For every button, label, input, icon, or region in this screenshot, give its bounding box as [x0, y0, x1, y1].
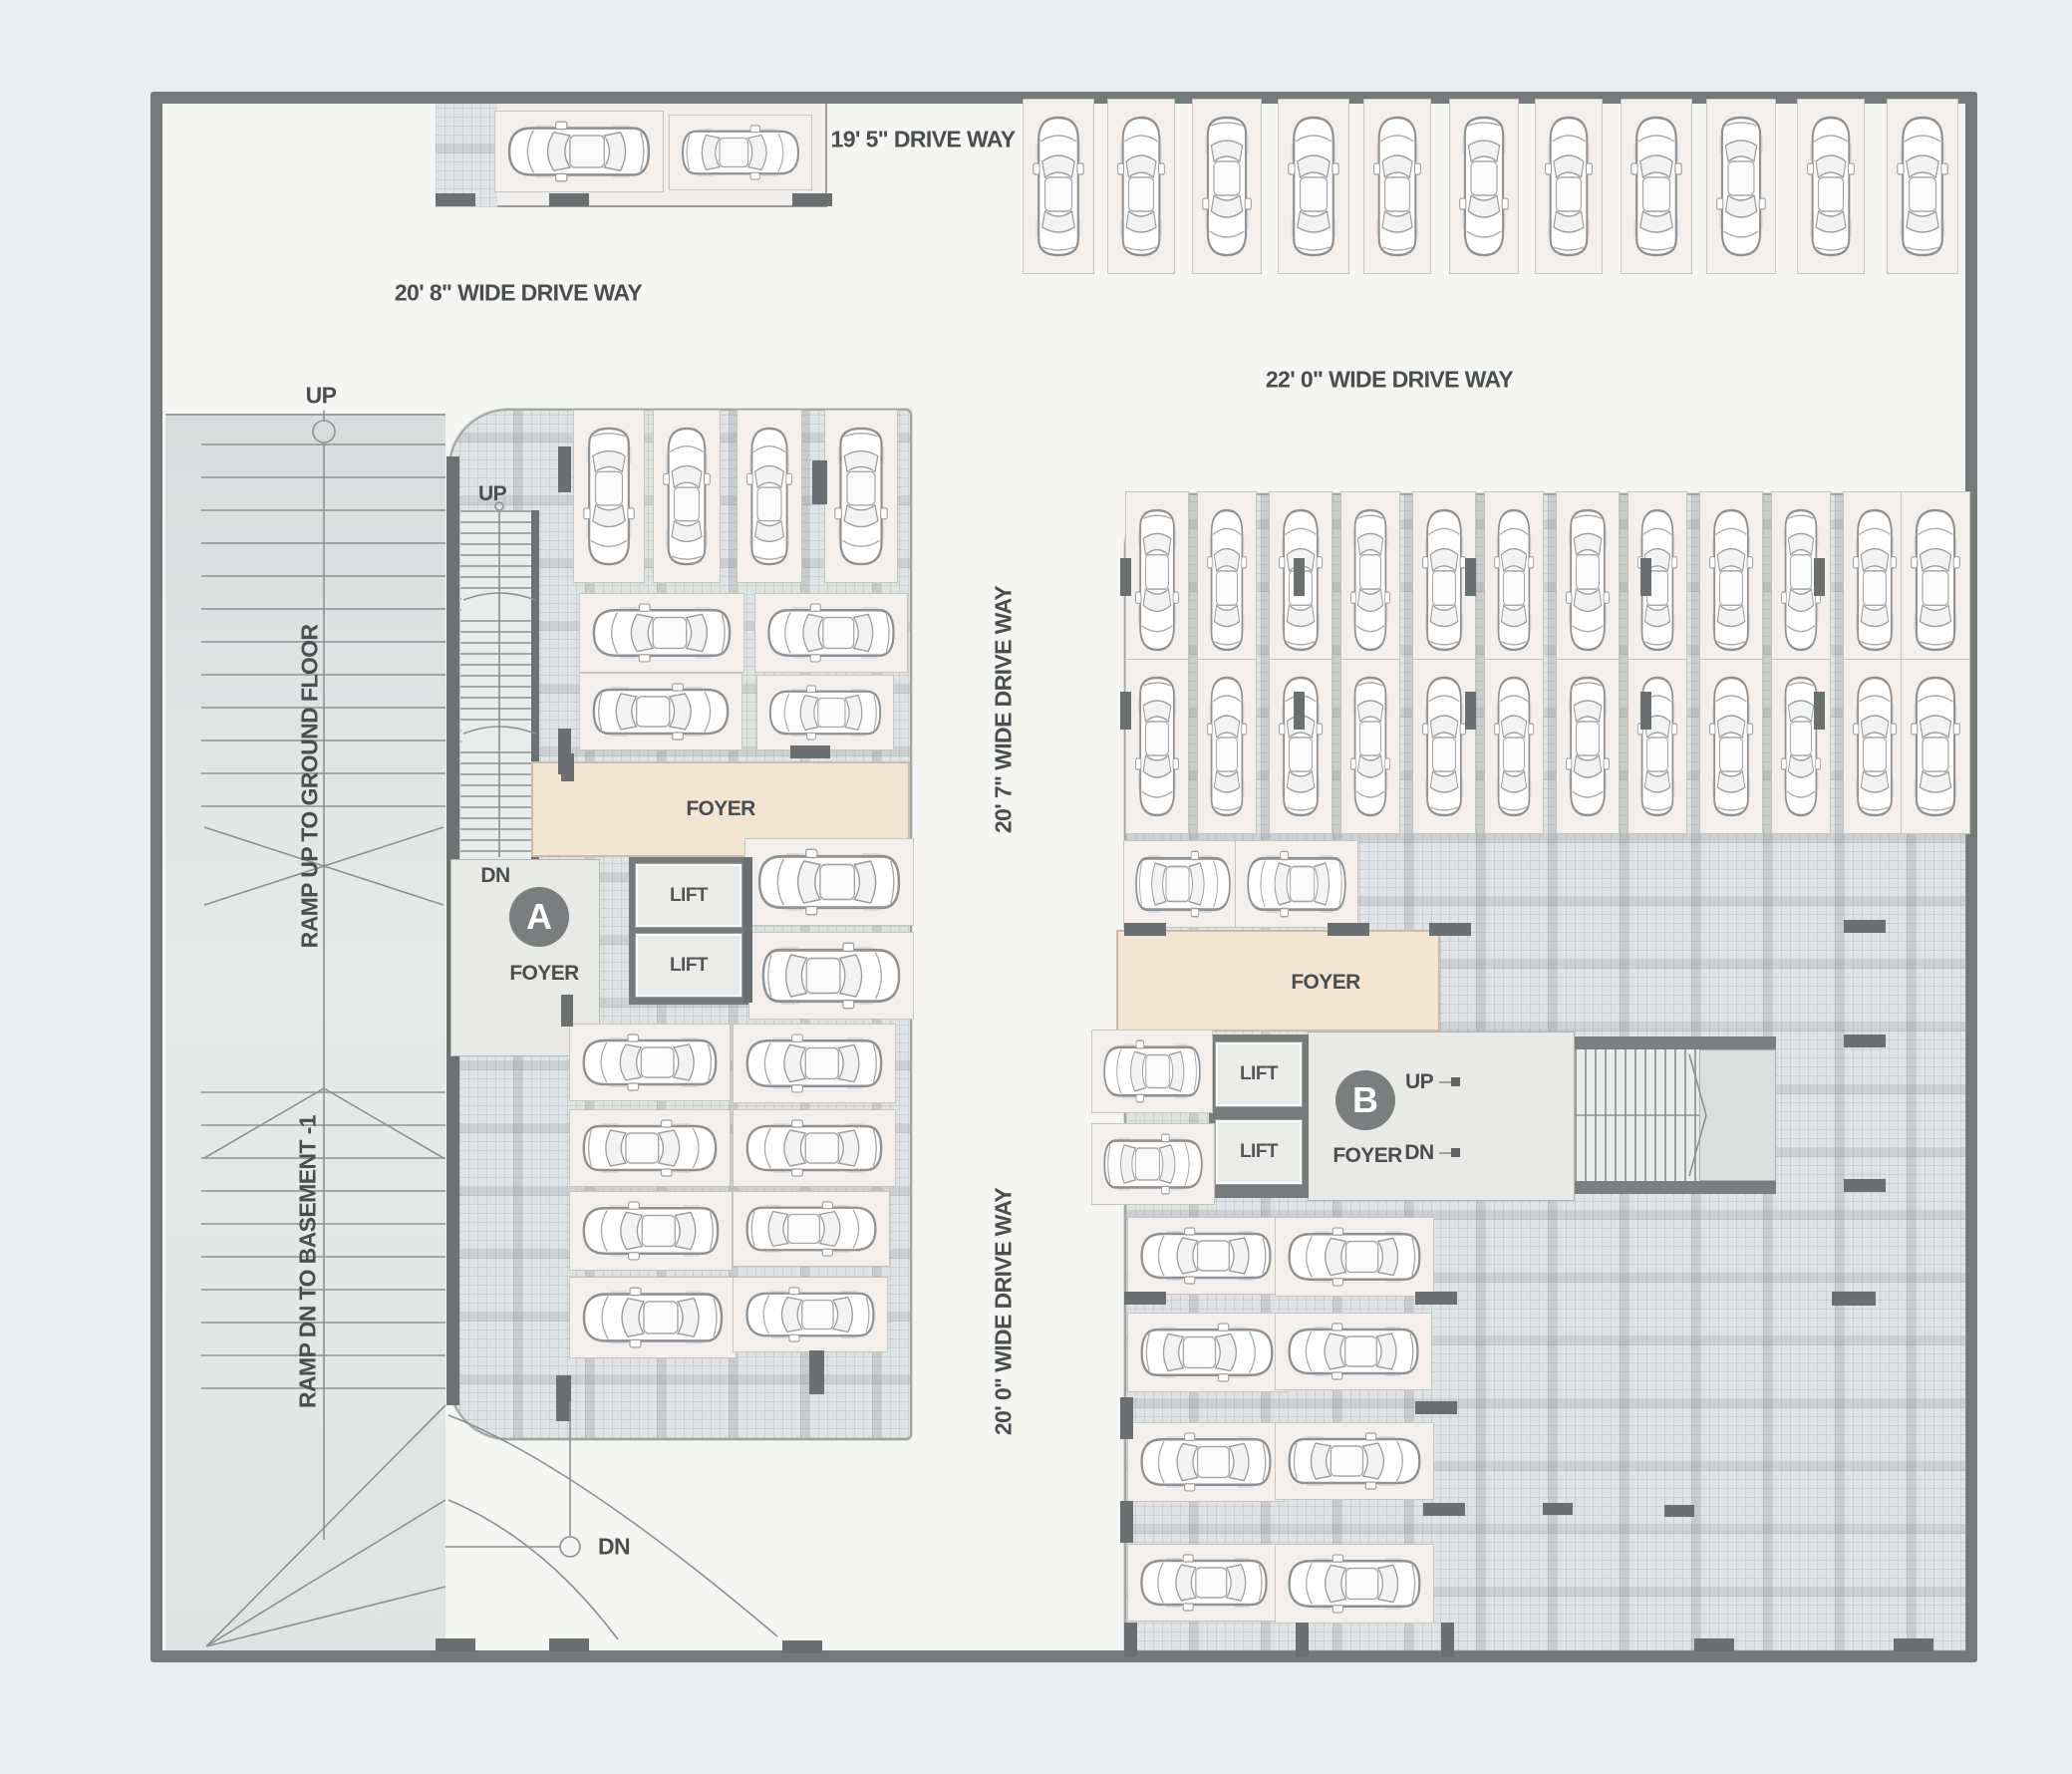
tower-a-staircase: [460, 510, 538, 862]
car-icon: [1458, 112, 1510, 261]
car-icon: [741, 1286, 879, 1343]
tower-a-core-foyer-label: FOYER: [509, 962, 578, 986]
column-marker: [1640, 692, 1651, 730]
car-icon: [745, 423, 793, 570]
lift-label: LIFT: [670, 955, 708, 977]
lift-label: LIFT: [670, 885, 708, 907]
car-icon: [1349, 672, 1391, 821]
car-icon: [1421, 672, 1467, 821]
ramp-up-marker-label: UP: [306, 383, 337, 410]
car-icon: [763, 602, 899, 664]
top-parking-bay-tiles: [436, 104, 497, 207]
car-icon: [1244, 849, 1349, 919]
column-marker: [809, 1350, 824, 1394]
column-marker: [1664, 1505, 1694, 1517]
lift-label: LIFT: [1240, 1141, 1278, 1163]
column-marker: [1120, 558, 1131, 596]
driveway-label-20-7: 20' 7" WIDE DRIVE WAY: [991, 586, 1018, 833]
column-marker: [561, 995, 573, 1027]
car-icon: [1349, 504, 1391, 656]
column-marker: [782, 1640, 822, 1653]
car-icon: [1806, 112, 1856, 261]
stair-a-landing-2: [461, 724, 537, 743]
tower-a-dn-label: DN: [480, 864, 509, 888]
tower-b-staircase: [1575, 1049, 1699, 1181]
car-icon: [1565, 672, 1611, 821]
tower-a-lift-1: LIFT: [636, 864, 741, 927]
car-icon: [1134, 672, 1180, 821]
car-icon: [1287, 112, 1340, 261]
column-marker: [1328, 923, 1369, 936]
tower-b-lift-shaft: LIFT LIFT: [1209, 1035, 1309, 1198]
car-icon: [1852, 504, 1898, 656]
car-icon: [1910, 672, 1961, 821]
stair-a-up-label: UP: [478, 482, 506, 506]
column-marker: [1894, 1638, 1933, 1651]
ramp-up-treads: [201, 443, 445, 827]
column-marker: [1814, 692, 1825, 730]
car-icon: [1910, 504, 1961, 656]
column-marker: [549, 193, 589, 206]
tower-b-core-foyer-label: FOYER: [1332, 1144, 1401, 1168]
car-icon: [1201, 112, 1253, 261]
car-icon: [1372, 112, 1422, 261]
column-marker: [1814, 558, 1825, 596]
tower-a-letter: A: [526, 896, 552, 938]
car-icon: [1284, 1553, 1425, 1615]
column-marker: [1844, 1035, 1886, 1047]
car-icon: [753, 847, 905, 917]
driveway-label-20-8: 20' 8" WIDE DRIVE WAY: [395, 280, 642, 307]
column-marker: [436, 193, 475, 206]
column-marker: [1694, 1638, 1734, 1651]
column-marker: [1294, 558, 1305, 596]
tower-b-foyer-band-label: FOYER: [1291, 971, 1359, 995]
column-marker: [1296, 1623, 1309, 1656]
column-marker: [549, 1638, 589, 1651]
column-marker: [812, 460, 827, 504]
car-icon: [1544, 112, 1594, 261]
car-icon: [1284, 1226, 1425, 1288]
tower-a-lift-2: LIFT: [636, 934, 741, 997]
ramp-down-label: RAMP DN TO BASEMENT -1: [295, 1115, 322, 1408]
stair-a-landing-1: [461, 592, 537, 612]
car-icon: [1134, 504, 1180, 656]
car-icon: [765, 684, 885, 741]
driveway-label-20-0: 20' 0" WIDE DRIVE WAY: [991, 1188, 1018, 1435]
car-icon: [1032, 112, 1085, 261]
car-icon: [1493, 672, 1535, 821]
car-icon: [741, 1118, 887, 1178]
column-marker: [1120, 692, 1131, 730]
tower-b-up-label: UP: [1405, 1070, 1433, 1094]
tower-b-badge: B: [1335, 1070, 1395, 1130]
column-marker: [1423, 1503, 1465, 1516]
car-icon: [833, 423, 889, 570]
car-icon: [1100, 1038, 1204, 1104]
basement-parking-floor-plan: LIFT LIFT LIFT LIFT: [0, 0, 2072, 1774]
driveway-label-19-5: 19' 5" DRIVE WAY: [831, 127, 1016, 153]
car-icon: [578, 1033, 722, 1092]
car-icon: [1284, 1322, 1423, 1381]
tower-b-letter: B: [1352, 1079, 1378, 1121]
car-icon: [1708, 672, 1754, 821]
car-icon: [578, 1286, 728, 1349]
column-marker: [1844, 920, 1886, 933]
car-icon: [578, 1200, 724, 1262]
tower-a-lift-shaft: LIFT LIFT: [629, 857, 748, 1005]
car-icon: [1136, 1553, 1272, 1613]
column-marker: [743, 857, 752, 1003]
column-marker: [436, 1638, 475, 1651]
tower-a-badge: A: [509, 887, 569, 947]
car-icon: [662, 423, 712, 570]
column-marker: [1294, 692, 1305, 730]
car-icon: [588, 682, 734, 741]
car-icon: [578, 1118, 722, 1178]
ramp-down-marker-label: DN: [598, 1534, 630, 1561]
car-icon: [1896, 112, 1949, 261]
stair-b-bottom-wall: [1575, 1181, 1776, 1194]
column-marker: [1124, 1623, 1137, 1656]
car-icon: [582, 423, 636, 570]
car-icon: [1132, 849, 1234, 919]
column-marker: [1120, 1397, 1133, 1439]
tower-b-lift-1: LIFT: [1216, 1042, 1302, 1106]
column-marker: [1832, 1292, 1876, 1306]
column-marker: [1415, 1401, 1457, 1414]
car-icon: [1565, 504, 1611, 656]
column-marker: [1465, 692, 1476, 730]
car-icon: [1136, 1322, 1278, 1383]
column-marker: [561, 753, 574, 781]
column-marker: [790, 745, 830, 758]
ramp-down-treads: [201, 1091, 445, 1395]
stair-b-landing: [1699, 1049, 1776, 1181]
tower-a-foyer-band-label: FOYER: [686, 797, 754, 821]
car-icon: [1629, 112, 1683, 261]
car-icon: [741, 1033, 887, 1094]
car-icon: [1421, 504, 1467, 656]
car-icon: [1708, 504, 1754, 656]
column-marker: [556, 1375, 571, 1421]
column-marker: [1429, 923, 1471, 936]
tower-b-lift-2: LIFT: [1216, 1120, 1302, 1184]
car-icon: [588, 602, 736, 664]
car-icon: [1136, 1431, 1276, 1493]
car-icon: [1136, 1226, 1276, 1286]
car-icon: [741, 1200, 881, 1258]
driveway-label-22-0: 22' 0" WIDE DRIVE WAY: [1266, 367, 1513, 394]
column-marker: [1543, 1503, 1573, 1515]
tower-b-dn-label: DN: [1404, 1141, 1433, 1165]
column-marker: [1465, 558, 1476, 596]
stair-b-top-wall: [1575, 1036, 1776, 1049]
column-marker: [1441, 1623, 1454, 1656]
car-icon: [1116, 112, 1166, 261]
column-marker: [792, 193, 832, 206]
car-icon: [678, 124, 803, 181]
column-marker: [1640, 558, 1651, 596]
column-marker: [558, 446, 571, 492]
car-icon: [503, 120, 655, 183]
car-icon: [1100, 1132, 1206, 1196]
car-icon: [1852, 672, 1898, 821]
tower-b-foyer-band: [1116, 930, 1440, 1032]
car-icon: [1206, 672, 1248, 821]
car-icon: [1715, 112, 1767, 261]
column-marker: [1124, 1292, 1166, 1305]
car-icon: [1493, 504, 1535, 656]
column-marker: [1415, 1292, 1457, 1305]
ramp-up-label: RAMP UP TO GROUND FLOOR: [297, 625, 324, 949]
lift-label: LIFT: [1240, 1063, 1278, 1085]
car-icon: [1206, 504, 1248, 656]
column-marker: [1120, 1501, 1133, 1543]
column-marker: [1124, 923, 1166, 936]
car-icon: [1284, 1431, 1425, 1491]
car-icon: [757, 941, 905, 1011]
column-marker: [1844, 1179, 1886, 1192]
